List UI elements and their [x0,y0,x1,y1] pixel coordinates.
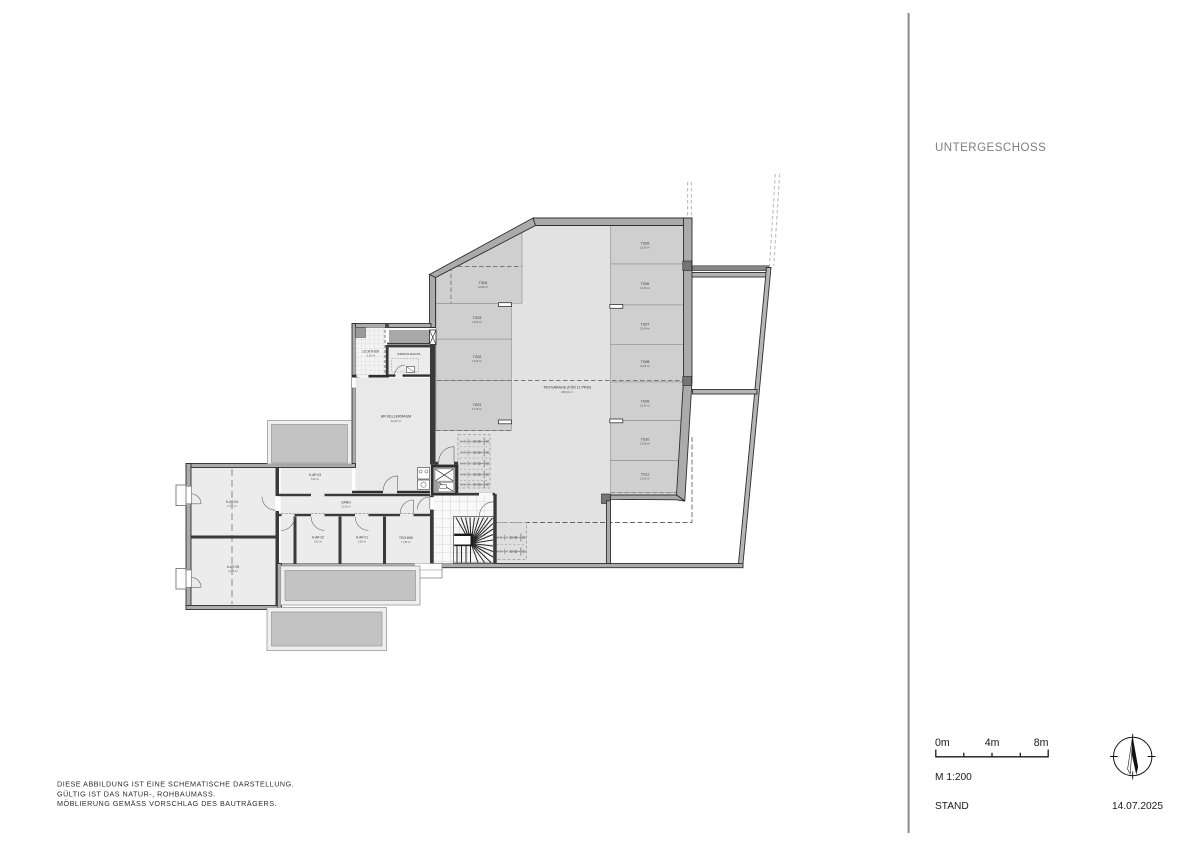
svg-text:TG05: TG05 [641,242,650,246]
svg-text:0m: 0m [935,737,950,749]
svg-text:TECHNIK: TECHNIK [399,536,414,540]
svg-text:LICHTHOF: LICHTHOF [363,350,380,354]
svg-text:TG02: TG02 [473,355,482,359]
svg-text:TIEFGARAGE (FÜR 11 PKW): TIEFGARAGE (FÜR 11 PKW) [543,386,591,390]
svg-text:MÖBLIERUNG GEMÄSS VORSCHLAG DE: MÖBLIERUNG GEMÄSS VORSCHLAG DES BAUTRÄGE… [57,799,277,808]
svg-text:8m: 8m [1034,737,1049,749]
svg-text:5,35 m²: 5,35 m² [358,541,366,544]
svg-text:AR KELLERRAUM: AR KELLERRAUM [381,415,411,419]
svg-text:GANG: GANG [341,501,351,505]
svg-text:K-AR 01: K-AR 01 [356,536,368,540]
svg-text:TG09: TG09 [641,400,650,404]
svg-text:VORRAUM WASCHK.: VORRAUM WASCHK. [397,353,421,356]
svg-text:12,68 m²: 12,68 m² [640,443,650,446]
svg-text:TG10: TG10 [641,438,650,442]
svg-text:4m: 4m [985,737,1000,749]
svg-text:11,20 m²: 11,20 m² [341,506,350,509]
svg-text:5,32 m²: 5,32 m² [314,541,322,544]
svg-text:14,06 m²: 14,06 m² [472,321,482,324]
svg-text:14,06 m²: 14,06 m² [472,360,482,363]
svg-text:12,25 m²: 12,25 m² [640,365,650,368]
svg-text:5,31 m²: 5,31 m² [311,478,319,481]
svg-text:TG01: TG01 [473,403,482,407]
svg-text:K-AR 02: K-AR 02 [312,536,324,540]
svg-text:14,25 m²: 14,25 m² [228,570,238,573]
svg-text:12,49 m²: 12,49 m² [640,287,650,290]
svg-text:12,93 m²: 12,93 m² [640,478,650,481]
svg-text:12,41 m²: 12,41 m² [640,405,650,408]
svg-text:13,76 m²: 13,76 m² [472,408,482,411]
svg-text:M 1:200: M 1:200 [935,772,972,783]
svg-text:TG04: TG04 [479,281,488,285]
svg-text:12,49 m²: 12,49 m² [640,328,650,331]
svg-text:12,00 m²: 12,00 m² [640,247,650,250]
svg-text:UNTERGESCHOSS: UNTERGESCHOSS [935,142,1046,154]
svg-text:TG07: TG07 [641,323,650,327]
svg-text:TG06: TG06 [641,282,650,286]
svg-text:TG08: TG08 [641,360,650,364]
svg-text:K-AR 03: K-AR 03 [309,473,321,477]
svg-text:K-AR 05: K-AR 05 [227,565,239,569]
svg-text:298,41 m²: 298,41 m² [561,390,573,394]
svg-text:3,15 m²: 3,15 m² [367,355,376,358]
svg-text:TG11: TG11 [641,473,649,477]
svg-text:14.07.2025: 14.07.2025 [1112,801,1163,812]
svg-text:40,20 m²: 40,20 m² [391,419,401,423]
svg-text:17,25 m²: 17,25 m² [401,541,411,544]
svg-text:GÜLTIG IST DAS NATUR-, ROHBAUM: GÜLTIG IST DAS NATUR-, ROHBAUMASS. [57,789,216,798]
svg-text:STAND: STAND [935,801,969,812]
svg-text:16,99 m²: 16,99 m² [478,286,488,289]
svg-text:TG03: TG03 [473,316,482,320]
svg-text:DIESE ABBILDUNG IST EINE SCHEM: DIESE ABBILDUNG IST EINE SCHEMATISCHE DA… [57,780,294,789]
